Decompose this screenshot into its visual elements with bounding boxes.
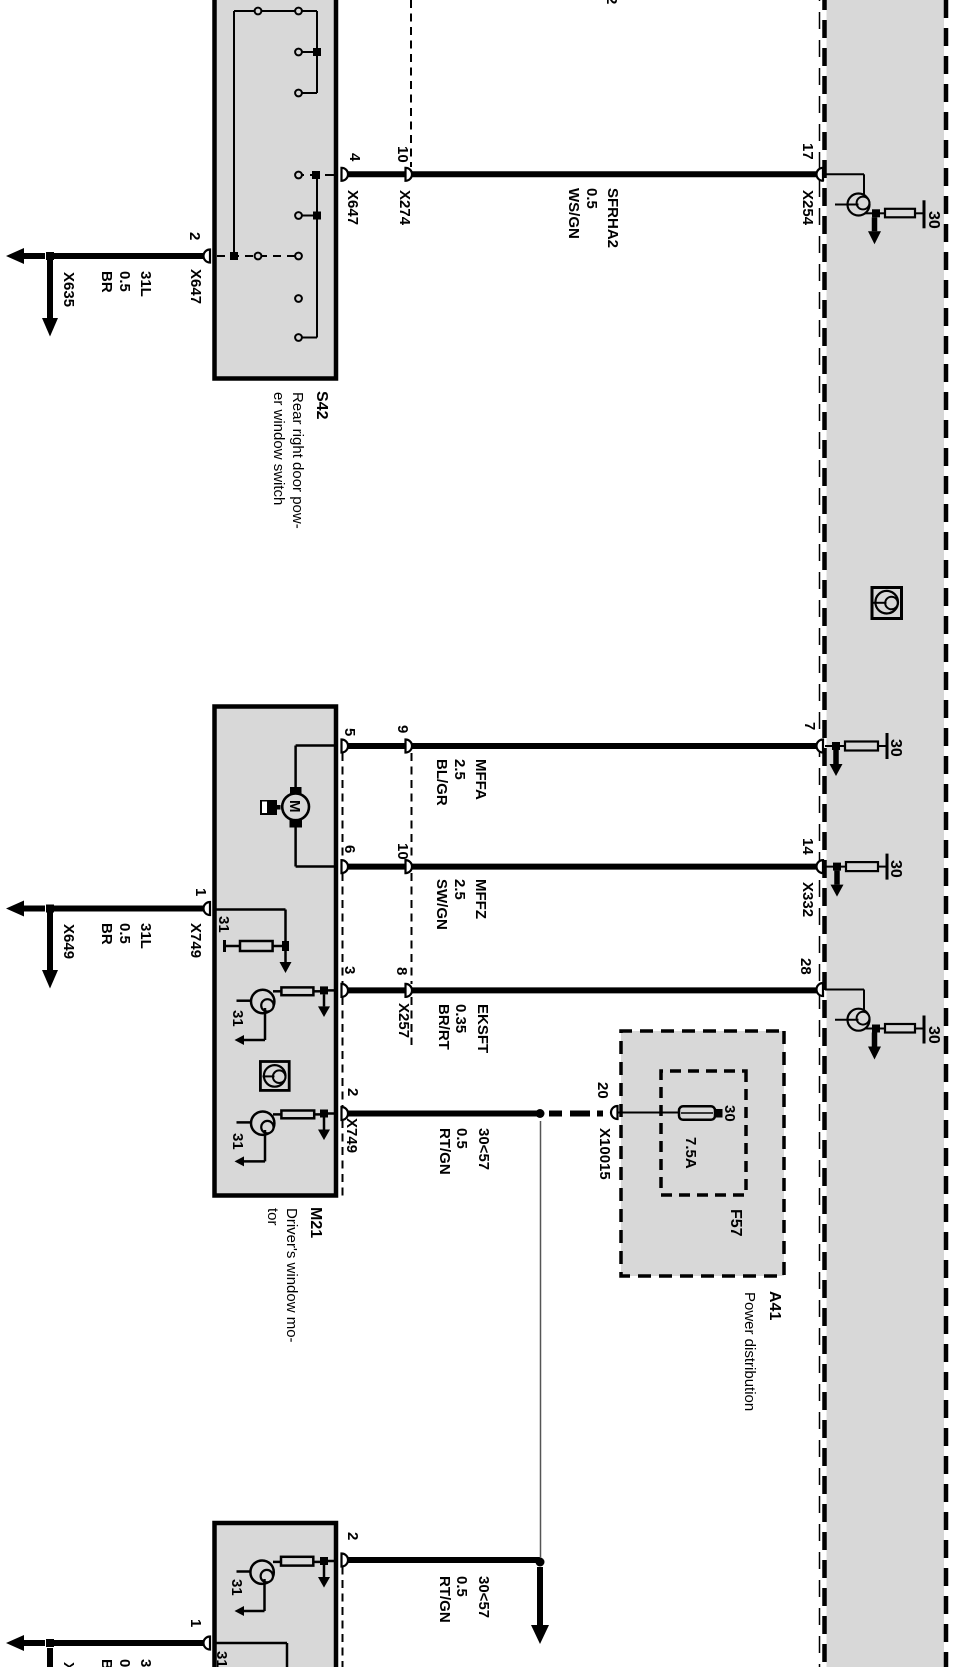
svg-text:2: 2	[603, 0, 620, 4]
svg-text:WS/GN: WS/GN	[565, 188, 582, 239]
svg-text:tor: tor	[264, 1208, 281, 1226]
svg-text:X649: X649	[60, 924, 77, 959]
svg-text:7: 7	[801, 722, 818, 730]
svg-text:0.5: 0.5	[116, 1659, 133, 1667]
svg-text:BL/GR: BL/GR	[433, 759, 450, 806]
svg-text:17: 17	[799, 143, 816, 160]
svg-text:BR: BR	[98, 271, 115, 293]
svg-text:31: 31	[229, 1010, 246, 1027]
svg-text:X254: X254	[799, 190, 816, 226]
svg-text:31: 31	[228, 1579, 245, 1596]
svg-text:X850: X850	[60, 1662, 77, 1667]
svg-text:30: 30	[887, 860, 904, 878]
svg-text:30<57: 30<57	[475, 1128, 492, 1170]
svg-text:2: 2	[186, 232, 203, 240]
svg-text:Driver's window mo-: Driver's window mo-	[283, 1208, 300, 1343]
svg-text:RT/GN: RT/GN	[436, 1128, 453, 1175]
svg-text:0.5: 0.5	[116, 271, 133, 292]
svg-text:X647: X647	[187, 269, 204, 304]
svg-text:2: 2	[344, 1088, 361, 1096]
svg-text:8: 8	[393, 967, 410, 975]
svg-text:31: 31	[215, 916, 232, 933]
svg-text:28: 28	[797, 958, 814, 975]
svg-text:4: 4	[346, 153, 363, 162]
svg-text:31L: 31L	[137, 1659, 154, 1667]
svg-text:31L: 31L	[137, 923, 154, 949]
svg-text:2.5: 2.5	[451, 759, 468, 780]
svg-text:2: 2	[344, 1532, 361, 1540]
svg-text:0.5: 0.5	[116, 923, 133, 944]
svg-text:0.5: 0.5	[453, 1128, 470, 1149]
svg-text:SFRHA2: SFRHA2	[604, 188, 621, 248]
svg-text:1: 1	[192, 888, 209, 896]
svg-text:X10015: X10015	[596, 1128, 613, 1180]
svg-text:X749: X749	[187, 923, 204, 958]
svg-text:30: 30	[887, 739, 904, 757]
svg-text:X647: X647	[344, 190, 361, 225]
svg-text:31L: 31L	[137, 271, 154, 297]
svg-text:30: 30	[721, 1105, 738, 1122]
svg-text:M: M	[286, 800, 303, 813]
svg-text:er window switch: er window switch	[270, 392, 287, 505]
svg-text:5: 5	[341, 728, 358, 736]
svg-text:EKSFT: EKSFT	[474, 1004, 491, 1053]
svg-text:9: 9	[394, 725, 411, 733]
svg-text:X332: X332	[799, 882, 816, 917]
svg-text:31: 31	[229, 1133, 246, 1150]
svg-text:F57: F57	[727, 1209, 744, 1237]
svg-text:14: 14	[799, 838, 816, 855]
svg-text:M21: M21	[307, 1207, 324, 1238]
svg-text:RT/GN: RT/GN	[436, 1576, 453, 1623]
svg-text:1: 1	[187, 1619, 204, 1627]
svg-text:X749: X749	[343, 1118, 360, 1153]
svg-text:X635: X635	[60, 272, 77, 307]
svg-text:30<57: 30<57	[475, 1576, 492, 1618]
svg-text:30: 30	[925, 1026, 942, 1044]
svg-text:6: 6	[341, 845, 358, 853]
svg-text:BR: BR	[98, 923, 115, 945]
svg-text:20: 20	[594, 1082, 611, 1099]
svg-text:SW/GN: SW/GN	[433, 879, 450, 930]
svg-text:0.35: 0.35	[452, 1004, 469, 1033]
svg-text:2.5: 2.5	[451, 879, 468, 900]
svg-text:BR/RT: BR/RT	[435, 1004, 452, 1050]
svg-text:Rear right door pow-: Rear right door pow-	[289, 392, 306, 529]
svg-text:3: 3	[341, 966, 358, 974]
svg-text:X257: X257	[395, 1003, 412, 1038]
svg-text:7.5A: 7.5A	[682, 1137, 699, 1169]
svg-text:10: 10	[394, 843, 411, 860]
svg-text:30: 30	[925, 211, 942, 229]
svg-text:0.5: 0.5	[453, 1576, 470, 1597]
svg-text:MFFZ: MFFZ	[472, 879, 489, 919]
svg-text:MFFA: MFFA	[472, 759, 489, 800]
svg-text:A41: A41	[766, 1291, 783, 1320]
svg-text:X274: X274	[396, 190, 413, 226]
svg-text:0.5: 0.5	[583, 188, 600, 209]
svg-text:10: 10	[394, 146, 411, 163]
svg-text:Power distribution: Power distribution	[741, 1292, 758, 1411]
svg-text:31: 31	[213, 1651, 230, 1667]
svg-text:BR: BR	[98, 1659, 115, 1667]
svg-text:S42: S42	[313, 391, 330, 420]
